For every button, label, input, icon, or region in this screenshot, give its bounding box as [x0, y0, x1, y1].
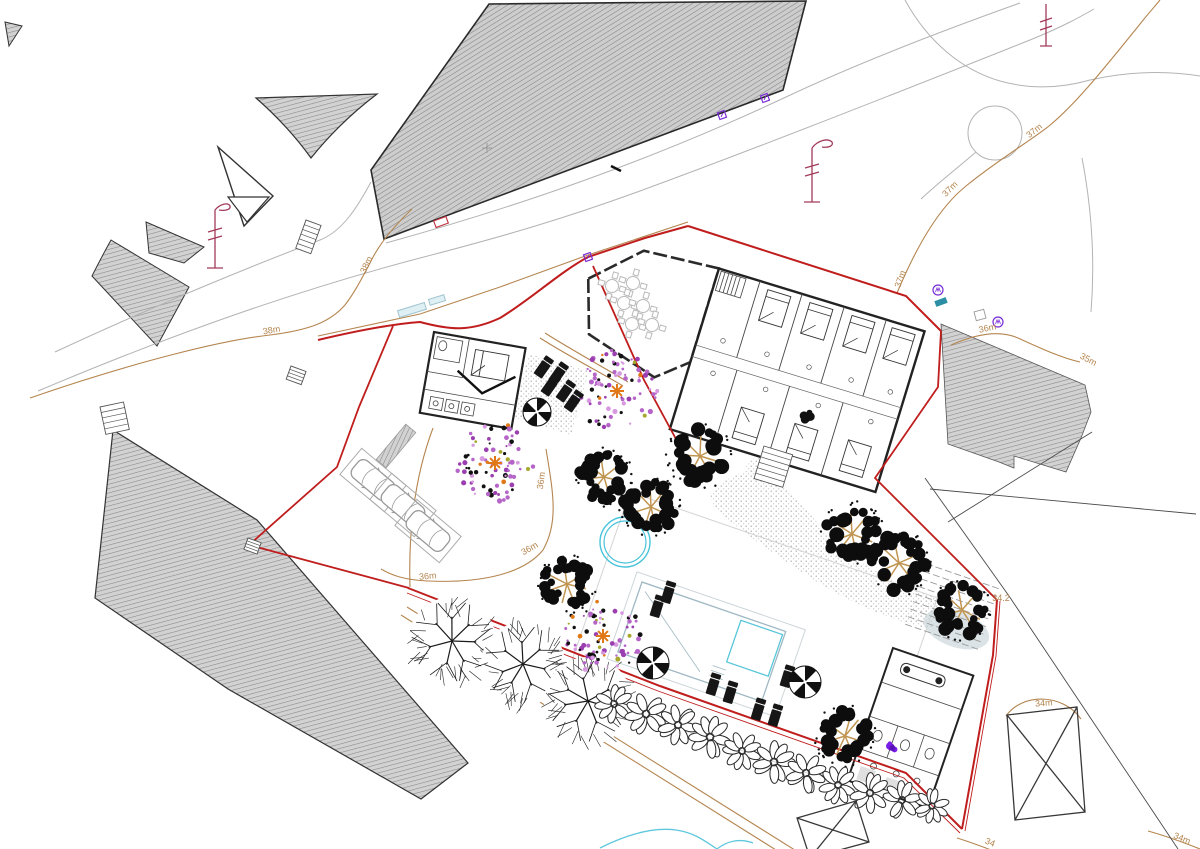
- steps: [100, 402, 129, 434]
- road-edge: [1082, 158, 1093, 312]
- crossed-structure: [1007, 707, 1085, 820]
- fence-line: [925, 478, 1178, 849]
- contour-label: 35m: [1078, 351, 1098, 368]
- contour-label: 38m: [358, 255, 374, 275]
- site-plan-canvas: 38m38m37m37m37m36m36m36m36m35m34m34m3434…: [0, 0, 1200, 849]
- existing-building-roof: [5, 22, 22, 46]
- teal-marker: [934, 297, 947, 307]
- tree-dense: [537, 555, 597, 614]
- parasol: [523, 398, 551, 426]
- contour-label: 36m: [535, 471, 547, 490]
- fence-line: [930, 489, 1196, 514]
- tree-dense: [618, 478, 681, 537]
- contour-label: 34m: [1035, 697, 1053, 708]
- survey-pole-icon: [1040, 4, 1052, 46]
- steps: [296, 220, 321, 254]
- parking-hatched-strip: [376, 424, 416, 468]
- existing-building-roof-large-north: [371, 1, 806, 239]
- contour-label: 38m: [262, 324, 281, 337]
- crossed-structure: [797, 801, 869, 849]
- existing-building-roof: [146, 222, 204, 263]
- existing-building-roof-east: [941, 324, 1091, 472]
- existing-building-roof: [256, 94, 377, 158]
- utility-marker-square: [584, 253, 593, 262]
- parasol: [789, 666, 821, 698]
- stream: [600, 829, 753, 849]
- contour-label: 36m: [419, 570, 437, 581]
- annex-building: [420, 332, 526, 429]
- utility-marker-square: [718, 111, 727, 120]
- contour-label: 34: [984, 836, 997, 849]
- utility-marker-square: [761, 94, 770, 103]
- parasol: [637, 647, 669, 679]
- neighbour-roof-outline: [228, 197, 269, 222]
- survey-pole-icon: [207, 204, 230, 268]
- tree-flowering: [455, 423, 535, 503]
- bench-marker: [428, 295, 445, 305]
- contour-label: 36m: [978, 321, 997, 334]
- contour-label: 37m: [892, 269, 907, 289]
- contour-label: 36m: [519, 540, 539, 557]
- contour-label: 34.2: [992, 593, 1010, 603]
- contour-38m: [30, 209, 412, 398]
- turning-loop: [968, 106, 1022, 160]
- utility-marker-circle: [933, 285, 943, 295]
- street-lamp-icon: [804, 140, 832, 202]
- contour-label: 34m: [1172, 830, 1192, 846]
- site-plan-page: 38m38m37m37m37m36m36m36m36m35m34m34m3434…: [0, 0, 1200, 849]
- contour-label: 37m: [940, 179, 959, 198]
- small-plot-square: [974, 309, 986, 320]
- contour-37m: [897, 0, 1160, 293]
- annex-bed: [471, 349, 509, 381]
- existing-building-roof-large-south: [95, 430, 468, 799]
- parking-layer: [340, 424, 461, 562]
- steps: [286, 366, 306, 385]
- road-edge: [905, 0, 1200, 87]
